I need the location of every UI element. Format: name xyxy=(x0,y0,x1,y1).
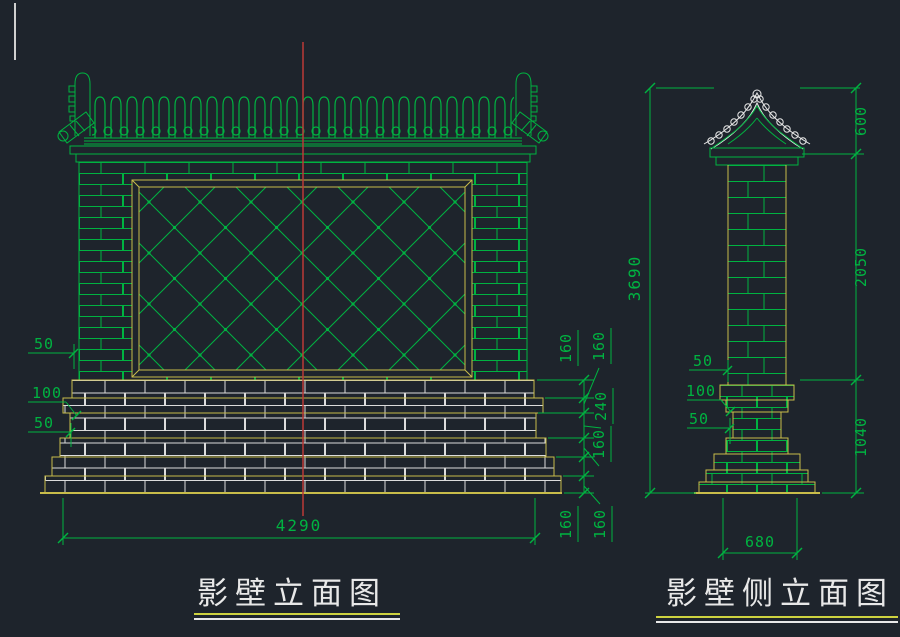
right-eave-ornament xyxy=(512,73,548,143)
dim-label-chain-2: 160 xyxy=(590,331,608,361)
base-step xyxy=(726,438,788,454)
front-elevation-title-block: 影壁立面图 xyxy=(194,576,400,619)
dim-label-base-width: 680 xyxy=(745,533,775,551)
left-eave-ornament xyxy=(58,73,94,143)
dim-label-total-height: 3690 xyxy=(625,255,644,302)
dim-label-offset-100: 100 xyxy=(32,384,62,402)
dim-label-chain-5: 160 xyxy=(591,509,609,539)
side-elevation xyxy=(694,90,820,493)
dim-label-chain-1: 160 xyxy=(557,333,575,363)
lattice-panel xyxy=(132,180,472,377)
front-elevation-title: 影壁立面图 xyxy=(197,576,387,611)
cap-band-lower xyxy=(716,157,798,165)
roof-inner-curve xyxy=(711,103,803,149)
base-step xyxy=(726,400,788,412)
dim-total-width: 4290 xyxy=(58,498,540,545)
cap-band-upper xyxy=(710,148,804,157)
shaft-bricks xyxy=(728,165,786,385)
dim-label-base-height: 1040 xyxy=(852,417,870,457)
front-elevation xyxy=(40,42,562,516)
dim-label-side-offset-100: 100 xyxy=(686,382,716,400)
side-roof xyxy=(704,90,810,165)
gable-pediment xyxy=(712,106,802,148)
base-step xyxy=(706,470,808,482)
side-base-steps xyxy=(699,385,815,493)
base-step xyxy=(733,412,781,438)
dim-label-side-offset-50-top: 50 xyxy=(693,352,713,370)
roof-tile-ends xyxy=(708,90,806,144)
front-height-chain-dim: 160 160 240 160 160 160 xyxy=(537,328,613,542)
dim-label-chain-3: 240 xyxy=(592,391,610,421)
column-shaft xyxy=(728,165,786,385)
side-height-chain-dim: 600 2050 1040 xyxy=(800,83,870,498)
dim-label-side-offset-50-bottom: 50 xyxy=(689,410,709,428)
dim-label-total-width: 4290 xyxy=(276,516,323,535)
base-step xyxy=(699,482,815,493)
dim-label-offset-50-bottom: 50 xyxy=(34,414,54,432)
cad-drawing: 4290 50 100 50 160 160 240 xyxy=(0,0,900,637)
dim-label-chain-6: 160 xyxy=(557,509,575,539)
side-elevation-title: 影壁侧立面图 xyxy=(666,576,894,611)
dim-label-offset-50-top: 50 xyxy=(34,335,54,353)
cad-drawing-canvas: 4290 50 100 50 160 160 240 xyxy=(0,0,900,637)
lattice-inner-frame xyxy=(139,187,465,370)
base-step xyxy=(714,454,800,470)
dim-label-chain-4: 160 xyxy=(590,429,608,459)
dim-label-shaft-height: 2050 xyxy=(852,247,870,287)
dim-label-roof-height: 600 xyxy=(852,106,870,136)
base-step xyxy=(720,385,794,400)
dim-base-width: 680 xyxy=(718,498,802,560)
side-elevation-title-block: 影壁侧立面图 xyxy=(656,576,898,622)
